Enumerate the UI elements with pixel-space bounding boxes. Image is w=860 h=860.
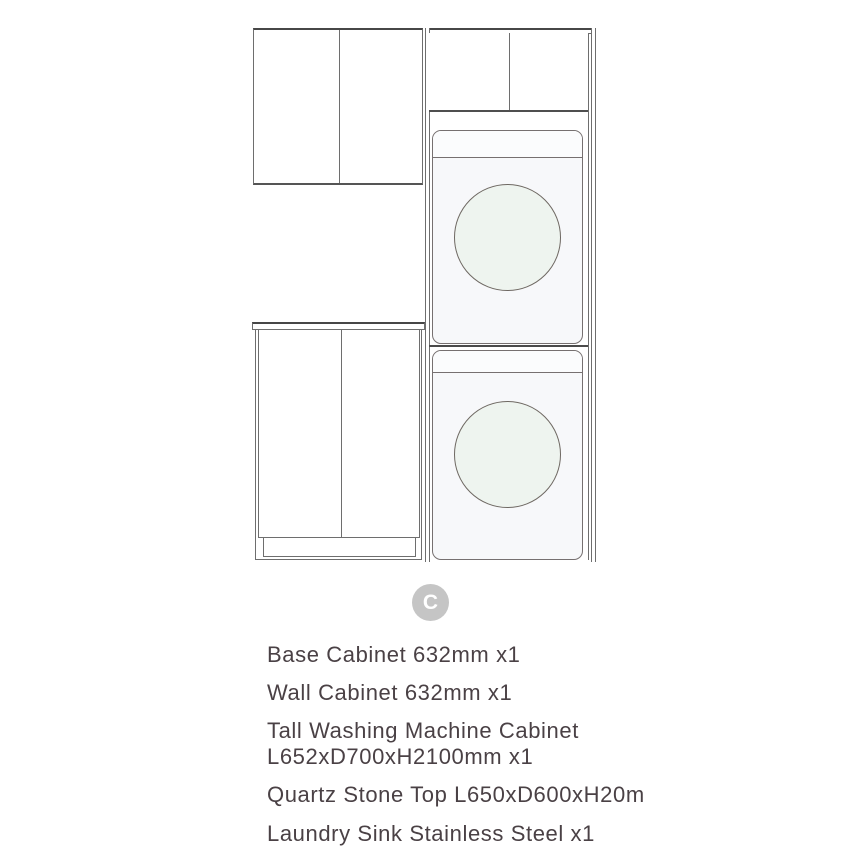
tall-cabinet-top-doors [429,33,588,112]
base-cabinet-kickboard [263,538,416,557]
spec-item-laundry-sink: Laundry Sink Stainless Steel x1 [267,821,595,847]
washing-machine-lower [432,350,583,560]
spec-item-quartz-stone-top: Quartz Stone Top L650xD600xH20m [267,782,645,808]
base-cabinet-doors [258,330,420,538]
spec-item-base-cabinet: Base Cabinet 632mm x1 [267,642,521,668]
spec-item-wall-cabinet: Wall Cabinet 632mm x1 [267,680,512,706]
washer-drum-door [454,184,561,291]
tall-cabinet-right-panel [591,28,596,562]
washer-drum-door [454,401,561,508]
washing-machine-upper [432,130,583,344]
wall-cabinet-door-divider [339,30,340,183]
quartz-stone-top [252,322,425,330]
spec-line: Quartz Stone Top L650xD600xH20m [267,782,645,808]
base-cabinet-door-divider [341,330,342,537]
option-c-badge[interactable]: C [412,584,449,621]
tall-cabinet-door-divider [509,33,510,110]
spec-line: Laundry Sink Stainless Steel x1 [267,821,595,847]
spec-item-tall-washing-machine-cabinet: Tall Washing Machine Cabinet L652xD700xH… [267,718,579,770]
laundry-cabinet-configuration-page: C Base Cabinet 632mm x1 Wall Cabinet 632… [0,0,860,860]
washer-control-panel [433,131,582,158]
washer-control-panel [433,351,582,373]
tall-cabinet-right-inner-edge [588,33,589,560]
washer-shelf-divider [429,345,588,347]
spec-line: L652xD700xH2100mm x1 [267,744,579,770]
spec-line: Wall Cabinet 632mm x1 [267,680,512,706]
spec-line: Base Cabinet 632mm x1 [267,642,521,668]
wall-cabinet [253,28,423,185]
spec-line: Tall Washing Machine Cabinet [267,718,579,744]
